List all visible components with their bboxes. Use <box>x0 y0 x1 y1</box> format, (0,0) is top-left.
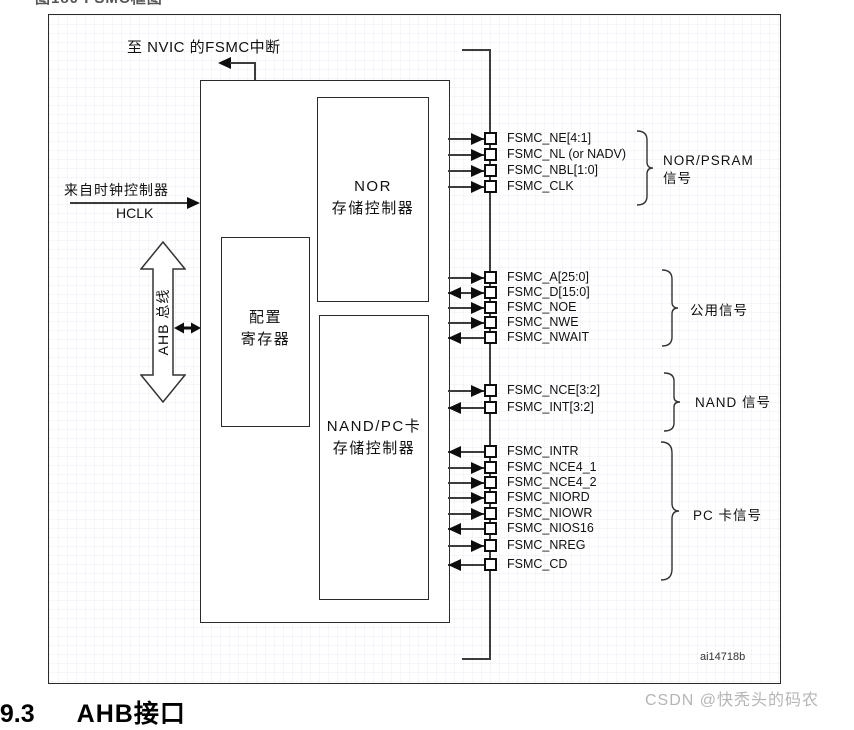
signal-label: FSMC_INTR <box>507 444 579 459</box>
arrow-left-icon <box>448 523 461 535</box>
signal-label: FSMC_NCE[3:2] <box>507 383 600 398</box>
signal-label: FSMC_NIOS16 <box>507 521 594 536</box>
clock-source-label: 来自时钟控制器 <box>64 180 169 200</box>
pin-square <box>484 271 497 284</box>
signal-label: FSMC_NBL[1:0] <box>507 163 598 178</box>
ahb-connect-arrow-icon <box>174 321 201 335</box>
section-title: AHB接口 <box>77 700 186 728</box>
pin-square <box>484 316 497 329</box>
config-block-label-line2: 寄存器 <box>222 329 309 351</box>
arrow-right-icon <box>471 133 484 145</box>
group-label-pccard: PC 卡信号 <box>693 507 762 525</box>
arrow-right-icon <box>471 317 484 329</box>
brace-common-icon <box>661 269 679 347</box>
nand-pccard-controller-block: NAND/PC卡 存储控制器 <box>319 315 429 600</box>
hclk-line <box>70 202 188 204</box>
pin-square <box>484 401 497 414</box>
section-heading-clipped: 19.3AHB接口 <box>0 694 186 730</box>
group-label-common: 公用信号 <box>690 302 748 320</box>
config-block-label-line1: 配置 <box>222 307 309 329</box>
group-label-nor-psram: NOR/PSRAM 信号 <box>663 152 754 188</box>
pin-square <box>484 507 497 520</box>
figure-caption-text: 图180 FSMC框图 <box>35 0 315 6</box>
pin-square <box>484 491 497 504</box>
pin-boundary-bottom-jog <box>462 658 491 660</box>
brace-nor-psram-icon <box>636 130 654 206</box>
signal-label: FSMC_A[25:0] <box>507 270 589 285</box>
arrow-left-icon <box>448 446 461 458</box>
hclk-arrow-right-icon <box>187 197 200 209</box>
pin-square <box>484 286 497 299</box>
hclk-label: HCLK <box>116 205 153 221</box>
arrow-right-icon <box>471 492 484 504</box>
signal-label: FSMC_D[15:0] <box>507 285 590 300</box>
signal-label: FSMC_NCE4_1 <box>507 460 597 475</box>
nor-controller-block: NOR 存储控制器 <box>317 97 429 302</box>
pin-boundary-top-jog <box>462 49 491 51</box>
arrow-right-icon <box>471 287 484 299</box>
arrow-right-icon <box>471 149 484 161</box>
signal-label: FSMC_NIOWR <box>507 506 592 521</box>
pin-square <box>484 476 497 489</box>
nand-block-label-line2: 存储控制器 <box>320 438 428 460</box>
nvic-arrow-line <box>230 62 256 64</box>
pin-square <box>484 384 497 397</box>
pin-square <box>484 331 497 344</box>
arrow-right-icon <box>471 272 484 284</box>
section-number: 19.3 <box>0 700 35 728</box>
signal-label: FSMC_NWAIT <box>507 330 589 345</box>
arrow-right-icon <box>471 462 484 474</box>
pin-square <box>484 461 497 474</box>
nor-block-label-line2: 存储控制器 <box>318 198 428 220</box>
signal-row: FSMC_NE[4:1] <box>448 131 708 147</box>
arrow-right-icon <box>471 385 484 397</box>
signal-label: FSMC_NIORD <box>507 490 590 505</box>
page: { "page": { "top_caption": "图180 FSMC框图"… <box>0 0 854 711</box>
signal-label: FSMC_CLK <box>507 179 574 194</box>
pin-square <box>484 148 497 161</box>
nvic-interrupt-label: 至 NVIC 的FSMC中断 <box>127 36 281 57</box>
arrow-left-icon <box>448 332 461 344</box>
group-label-nand: NAND 信号 <box>695 394 771 412</box>
pin-square <box>484 180 497 193</box>
group-label-line1: NOR/PSRAM <box>663 152 754 170</box>
arrow-right-icon <box>471 540 484 552</box>
arrow-left-icon <box>448 559 461 571</box>
pin-square <box>484 164 497 177</box>
arrow-right-icon <box>471 477 484 489</box>
signal-label: FSMC_INT[3:2] <box>507 400 594 415</box>
signal-label: FSMC_CD <box>507 557 567 572</box>
arrow-left-icon <box>448 402 461 414</box>
pin-square <box>484 132 497 145</box>
watermark: CSDN @快秃头的码农 <box>645 686 819 710</box>
signal-label: FSMC_NCE4_2 <box>507 475 597 490</box>
config-registers-block: 配置 寄存器 <box>221 237 310 427</box>
signal-label: FSMC_NL (or NADV) <box>507 147 626 162</box>
signal-label: FSMC_NOE <box>507 300 576 315</box>
signal-label: FSMC_NWE <box>507 315 579 330</box>
group-label-line2: 信号 <box>663 170 754 188</box>
pin-square <box>484 301 497 314</box>
pin-square <box>484 558 497 571</box>
pin-square <box>484 445 497 458</box>
brace-nand-icon <box>663 372 681 432</box>
nor-block-label-line1: NOR <box>318 176 428 198</box>
nvic-arrow-riser <box>254 62 256 81</box>
signal-label: FSMC_NREG <box>507 538 585 553</box>
brace-pccard-icon <box>660 441 680 581</box>
ahb-bus-label: AHB 总线 <box>153 262 173 382</box>
pin-square <box>484 539 497 552</box>
figure-caption-clipped: 图180 FSMC框图 <box>35 0 315 6</box>
arrow-right-icon <box>471 302 484 314</box>
signal-label: FSMC_NE[4:1] <box>507 131 591 146</box>
arrow-right-icon <box>471 508 484 520</box>
arrow-right-icon <box>471 165 484 177</box>
nand-block-label-line1: NAND/PC卡 <box>320 416 428 438</box>
pin-square <box>484 522 497 535</box>
arrow-left-icon <box>448 287 461 299</box>
figure-code: ai14718b <box>700 651 745 663</box>
arrow-right-icon <box>471 181 484 193</box>
